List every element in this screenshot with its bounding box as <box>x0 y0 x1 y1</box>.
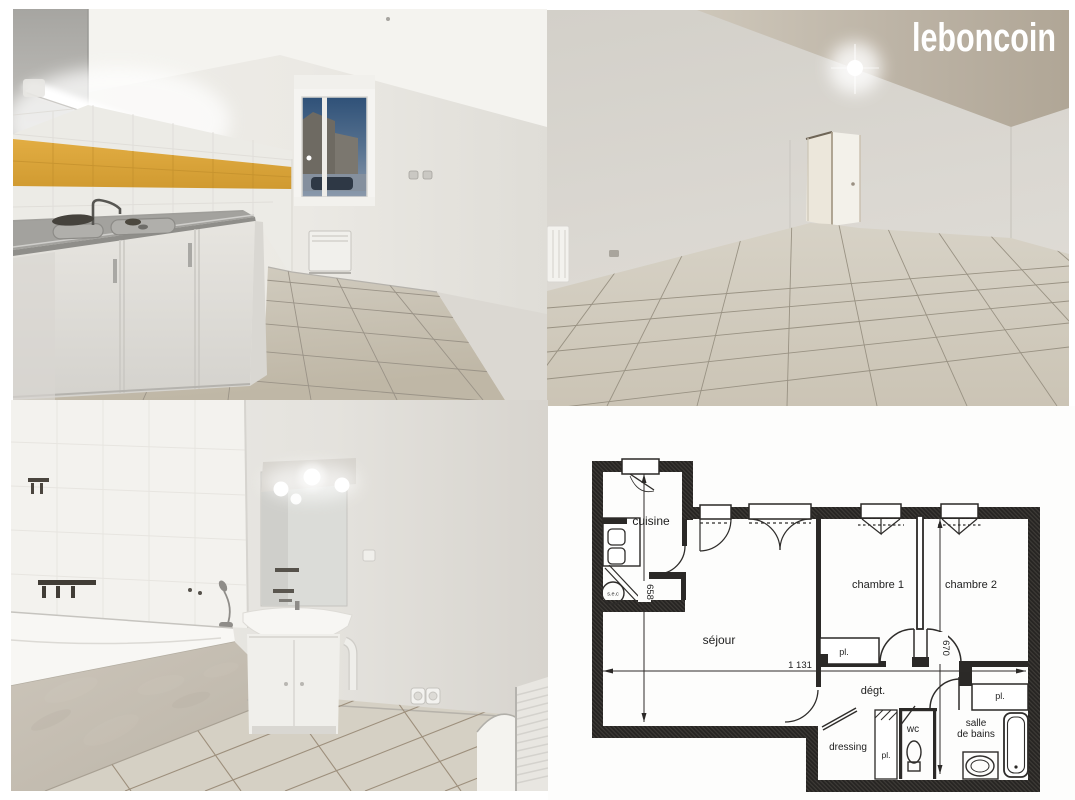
svg-text:dégt.: dégt. <box>861 685 885 697</box>
svg-text:chambre 2: chambre 2 <box>945 579 997 591</box>
svg-text:pl.: pl. <box>882 750 891 760</box>
svg-text:cuisine: cuisine <box>632 514 670 528</box>
svg-text:salle: salle <box>966 718 987 729</box>
svg-text:séjour: séjour <box>703 633 736 647</box>
svg-text:s.e.c: s.e.c <box>607 592 619 598</box>
svg-text:wc: wc <box>906 724 919 735</box>
svg-text:leboncoin: leboncoin <box>912 16 1056 60</box>
svg-text:670: 670 <box>940 640 951 656</box>
svg-text:chambre 1: chambre 1 <box>852 579 904 591</box>
svg-text:pl.: pl. <box>839 647 849 657</box>
svg-text:658: 658 <box>644 584 655 600</box>
svg-text:1 131: 1 131 <box>788 660 812 671</box>
svg-text:dressing: dressing <box>829 742 867 753</box>
svg-text:de bains: de bains <box>957 729 995 740</box>
svg-text:pl.: pl. <box>995 691 1005 701</box>
